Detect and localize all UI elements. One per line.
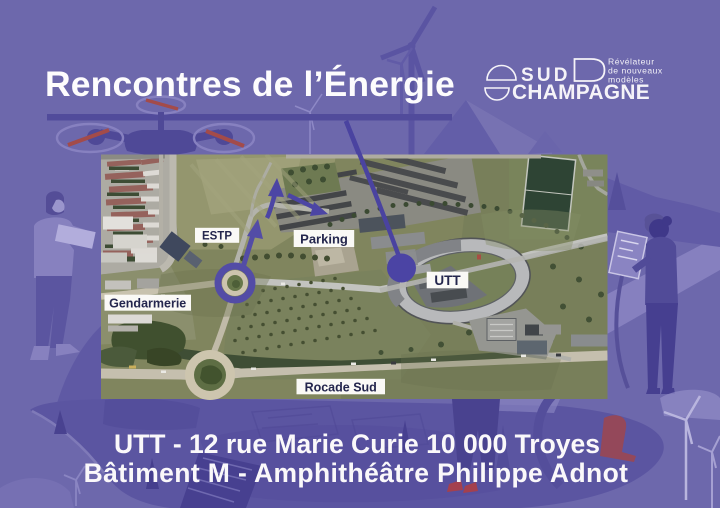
svg-text:Bâtiment M - Amphithéâtre Phil: Bâtiment M - Amphithéâtre Philippe Adnot bbox=[84, 458, 629, 488]
svg-text:UTT - 12 rue Marie Curie 10 00: UTT - 12 rue Marie Curie 10 000 Troyes bbox=[114, 429, 600, 459]
svg-text:Rencontres de l’Énergie: Rencontres de l’Énergie bbox=[45, 64, 455, 104]
svg-text:modèles: modèles bbox=[608, 75, 644, 85]
svg-text:Rocade Sud: Rocade Sud bbox=[305, 380, 377, 394]
svg-text:Gendarmerie: Gendarmerie bbox=[109, 297, 186, 311]
svg-text:UTT: UTT bbox=[434, 273, 461, 288]
svg-text:ESTP: ESTP bbox=[202, 231, 232, 243]
svg-text:Parking: Parking bbox=[300, 232, 348, 247]
